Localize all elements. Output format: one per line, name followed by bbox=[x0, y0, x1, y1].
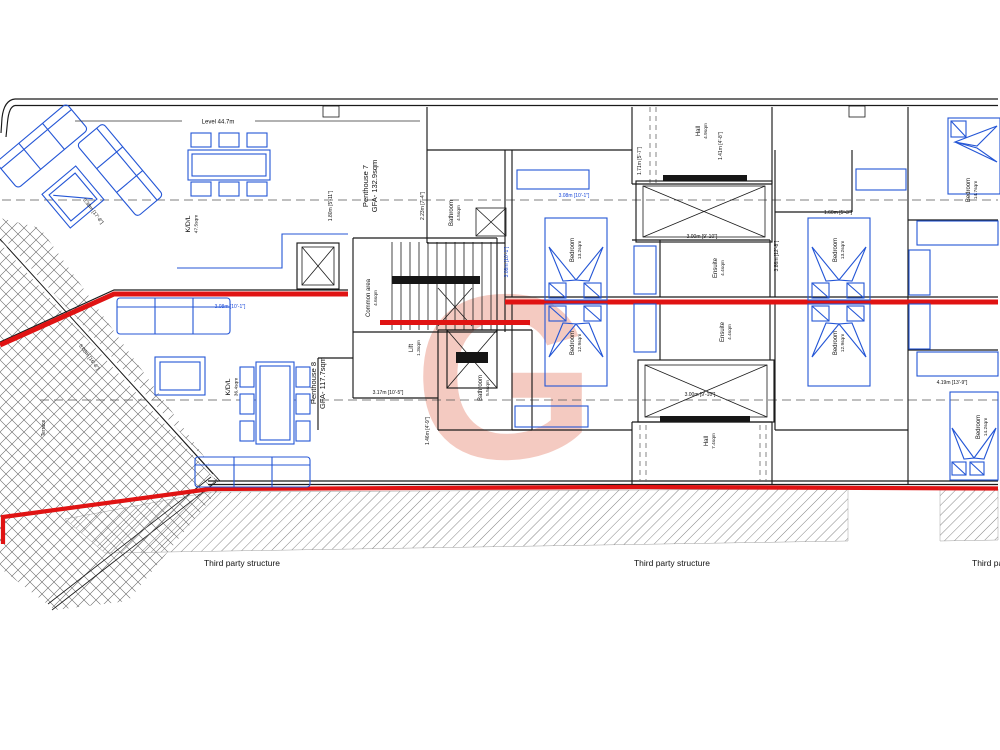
dim-d8: 1.80m [5'-11"] bbox=[328, 190, 334, 221]
room-label-bedroom-far-top: Bedroom 14.7sqm bbox=[966, 178, 979, 202]
bedroom-mid-top-name: Bedroom bbox=[570, 238, 576, 262]
bedroom-mid-top-area: 13.2sqm bbox=[577, 241, 583, 259]
bedroom-right-top-area: 13.2sqm bbox=[840, 241, 846, 259]
ensuite-top-name: Ensuite bbox=[713, 257, 719, 278]
dim-d15: 2.23m [7'-4"] bbox=[420, 191, 426, 220]
room-label-ensuite-top: Ensuite 4.4sqm bbox=[713, 257, 726, 278]
common-area-name: Common area bbox=[366, 278, 372, 317]
bed-far-bottom-right bbox=[950, 392, 998, 480]
room-label-kdl7: K/D/L 47.5sqm bbox=[185, 215, 200, 233]
bedroom-mid-bottom-name: Bedroom bbox=[570, 331, 576, 355]
bedroom-far-top-area: 14.7sqm bbox=[973, 181, 979, 199]
bedroom-right-top-name: Bedroom bbox=[833, 238, 839, 262]
bedroom-far-top-name: Bedroom bbox=[966, 178, 972, 202]
penthouse8-label: Penthouse 8 GFA- 117.7sqm bbox=[309, 357, 327, 409]
dim-d11: 3.86m [12'-8"] bbox=[774, 240, 780, 271]
room-label-ensuite-bottom: Ensuite 4.4sqm bbox=[720, 321, 733, 342]
sofa-terrace-a bbox=[0, 103, 88, 188]
ensuite-top-area: 4.4sqm bbox=[720, 260, 726, 276]
bedroom-far-bottom-area: 14.2sqm bbox=[983, 418, 989, 436]
service-shaft bbox=[297, 243, 339, 289]
room-label-bedroom-right-top: Bedroom 13.2sqm bbox=[833, 238, 846, 262]
lift-name: Lift bbox=[409, 344, 415, 352]
shaft-top-rooflight bbox=[636, 175, 772, 242]
dim-d10: 1.71m [5'-7"] bbox=[637, 146, 643, 175]
bedroom-right-bottom-area: 12.9sqm bbox=[840, 334, 846, 352]
kdl7-name: K/D/L bbox=[185, 215, 192, 232]
room-label-terrace: Terrace bbox=[41, 419, 47, 436]
floor-plan-canvas: G bbox=[0, 0, 1000, 750]
dining-table-p7 bbox=[188, 133, 270, 196]
kdl8-area: 36.4sqm bbox=[234, 378, 240, 396]
shaft-bottom-rooflight bbox=[638, 360, 774, 422]
bedroom-mid-bottom-area: 12.9sqm bbox=[577, 334, 583, 352]
room-label-common-area: Common area 4.6sqm bbox=[366, 278, 379, 317]
third-party-label-3: Third party structure bbox=[972, 558, 1000, 568]
room-label-bedroom-right-bottom: Bedroom 12.9sqm bbox=[833, 331, 846, 355]
third-party-label-1: Third party structure bbox=[204, 558, 280, 568]
kdl8-name: K/D/L bbox=[225, 378, 232, 395]
bathroom8-name: Bathroom bbox=[478, 375, 484, 401]
dim-d16: 1.41m [4'-8"] bbox=[718, 131, 724, 160]
penthouse7-gfa: GFA- 132.9sqm bbox=[370, 160, 379, 213]
hall-bottom-name: Hall bbox=[704, 436, 710, 446]
bathroom7-area: 4.5sqm bbox=[456, 205, 462, 221]
dim-d4: 3.00m [9'-10"] bbox=[685, 392, 716, 398]
bed-right-top bbox=[808, 218, 870, 300]
kdl7-area: 47.5sqm bbox=[194, 215, 200, 233]
hall-top-name: Hall bbox=[696, 126, 702, 136]
dining-table-p8 bbox=[240, 362, 310, 444]
third-party-hatch-band bbox=[65, 489, 998, 553]
room-label-hall-bottom: Hall 7.4sqm bbox=[704, 433, 717, 449]
room-label-hall-top: Hall 4.9sqm bbox=[696, 123, 709, 139]
dim-d9: 1.46m [4'-9"] bbox=[425, 416, 431, 445]
third-party-label-2: Third party structure bbox=[634, 558, 710, 568]
penthouse8-gfa: GFA- 117.7sqm bbox=[318, 357, 327, 409]
ensuite-bottom-name: Ensuite bbox=[720, 321, 726, 342]
dim-d6: 4.19m [13'-9"] bbox=[937, 380, 968, 386]
dim-d2: 3.08m [10'-1"] bbox=[504, 246, 510, 277]
level-label: Level 44.7m bbox=[202, 120, 235, 126]
sofa-p8 bbox=[117, 298, 230, 334]
hall-bottom-area: 7.4sqm bbox=[711, 433, 717, 449]
hall-top-area: 4.9sqm bbox=[703, 123, 709, 139]
dim-d12: 3.08m [10'-1"] bbox=[215, 304, 246, 310]
bathroom7-name: Bathroom bbox=[449, 200, 455, 226]
dim-d14: 1.60m [5'-3"] bbox=[824, 210, 853, 216]
bed-right-bottom bbox=[808, 304, 870, 386]
dim-d1: 3.08m [10'-1"] bbox=[559, 193, 590, 199]
room-label-bedroom-far-bottom: Bedroom 14.2sqm bbox=[976, 415, 989, 439]
dim-d5: 3.17m [10'-5"] bbox=[373, 390, 404, 396]
level-label-group: Level 44.7m bbox=[75, 120, 420, 126]
penthouse7-name: Penthouse 7 bbox=[361, 165, 370, 207]
dim-d3: 3.00m [9'-10"] bbox=[687, 234, 718, 240]
bedroom-right-bottom-name: Bedroom bbox=[833, 331, 839, 355]
penthouse7-label: Penthouse 7 GFA- 132.9sqm bbox=[361, 160, 379, 213]
room-label-kdl8: K/D/L 36.4sqm bbox=[225, 378, 240, 396]
bathroom8-area: 5.5sqm bbox=[485, 380, 491, 396]
room-label-bathroom7: Bathroom 4.5sqm bbox=[449, 200, 462, 226]
common-area-area: 4.6sqm bbox=[373, 290, 379, 306]
terrace-name: Terrace bbox=[41, 419, 47, 436]
rug bbox=[155, 357, 205, 395]
shower-unit bbox=[476, 208, 506, 236]
lift-area: 1.3sqm bbox=[416, 340, 422, 356]
kitchen-counter bbox=[177, 234, 348, 268]
ensuite-bottom-area: 4.4sqm bbox=[727, 324, 733, 340]
bedroom-far-bottom-name: Bedroom bbox=[976, 415, 982, 439]
penthouse8-name: Penthouse 8 bbox=[309, 362, 318, 404]
